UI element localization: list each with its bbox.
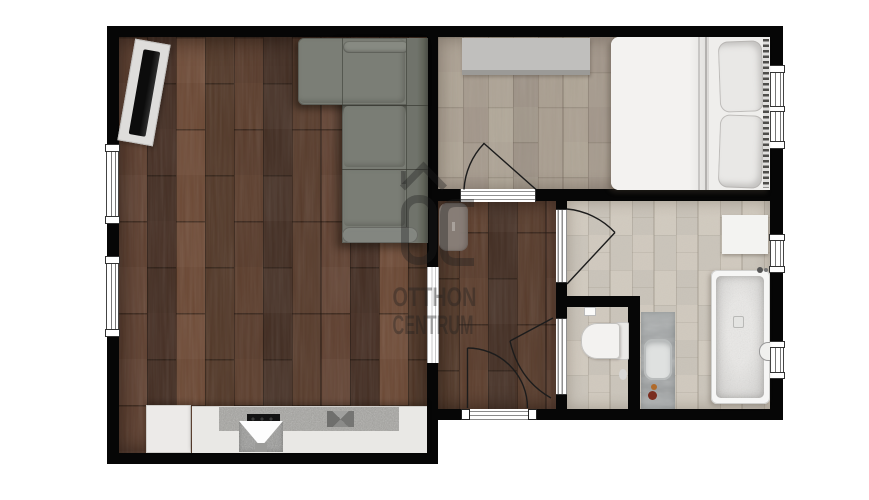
svg-text:CENTRUM: CENTRUM	[393, 310, 474, 340]
svg-text:OTTHON: OTTHON	[393, 282, 477, 312]
